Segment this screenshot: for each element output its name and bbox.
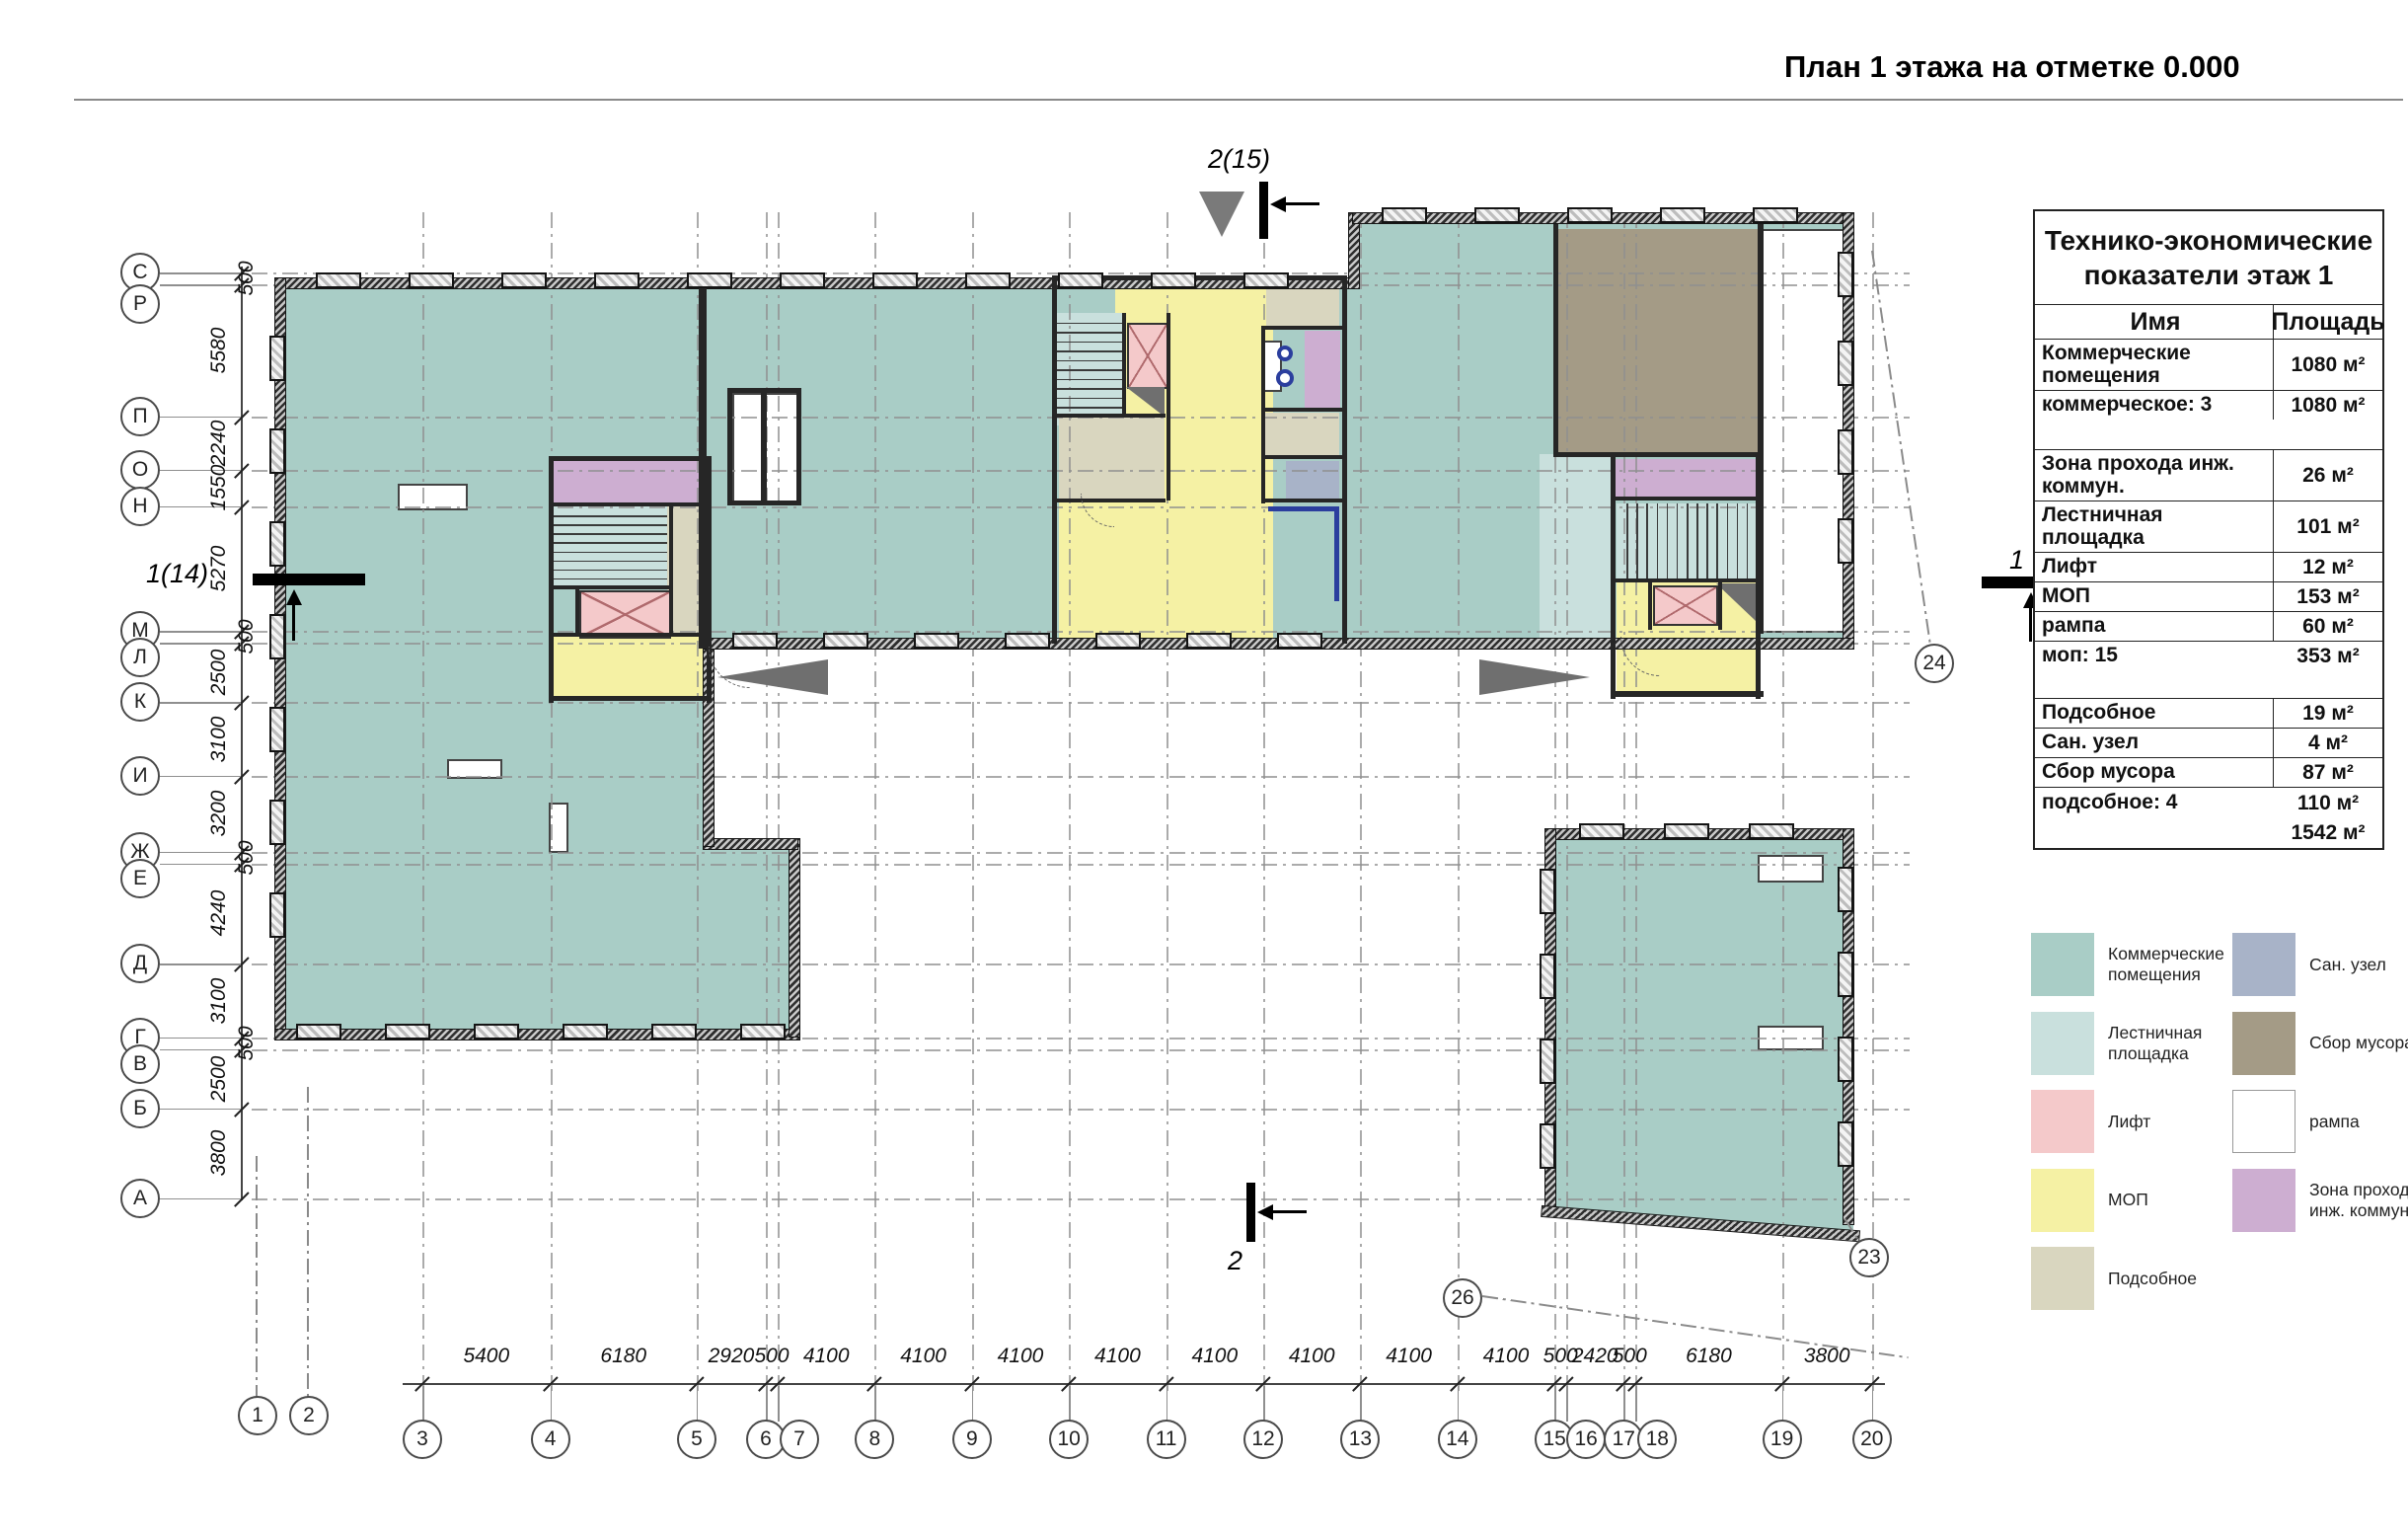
grid-line-h: [252, 470, 1910, 472]
window-mark: [594, 272, 640, 288]
tep-cell-name: Сан. узел: [2035, 730, 2273, 756]
axis-bubble-left: Н: [120, 487, 160, 526]
bubble-leader: [160, 702, 241, 704]
window-mark: [1838, 867, 1853, 912]
leader-line: [256, 1156, 258, 1403]
axis-bubble-left: А: [120, 1179, 160, 1218]
window-mark: [1186, 633, 1232, 649]
window-mark: [1838, 1121, 1853, 1167]
stair-lines: [1056, 388, 1122, 390]
axis-bubble-left: Б: [120, 1089, 160, 1128]
grid-line-v: [1872, 212, 1874, 1394]
wall-interior: [727, 388, 732, 503]
bubble-leader: [160, 1049, 241, 1051]
dim-label: 4100: [1289, 1345, 1335, 1368]
tep-cell-area: 153 м²: [2273, 582, 2382, 611]
stair-lines: [1667, 503, 1669, 580]
wall-interior: [1611, 452, 1616, 699]
axis-bubble-bottom: 8: [855, 1420, 894, 1459]
bubble-leader: [1635, 1386, 1637, 1422]
stair-lines: [1657, 503, 1659, 580]
section-arrow-line: [2029, 608, 2032, 642]
axis-bubble-bottom: 10: [1049, 1420, 1089, 1459]
window-mark: [385, 1024, 430, 1039]
wall-interior: [1553, 452, 1763, 457]
bubble-leader: [160, 272, 241, 274]
stair-lines: [554, 542, 667, 544]
stair-lines: [1706, 503, 1708, 580]
window-mark: [740, 1024, 786, 1039]
bubble-leader: [160, 631, 241, 633]
tep-row: Подсобное19 м²: [2035, 698, 2382, 728]
axis-bubble-bottom: 16: [1566, 1420, 1606, 1459]
axis-bubble-bottom: 12: [1243, 1420, 1283, 1459]
section-flag: [253, 574, 365, 585]
tep-cell-name: Лифт: [2035, 554, 2273, 580]
sink-icon: [1277, 346, 1293, 361]
window-mark: [965, 272, 1011, 288]
legend-item: Сбор мусора: [2232, 1012, 2408, 1075]
legend-label: Сан. узел: [2295, 955, 2408, 975]
tep-row: Лестничная площадка101 м²: [2035, 500, 2382, 552]
dim-label: 4100: [1094, 1345, 1141, 1368]
legend-label: Зона прохода инж. коммун.: [2295, 1180, 2408, 1221]
bubble-leader: [160, 1198, 241, 1200]
axis-bubble-left: Л: [120, 638, 160, 677]
grid-line-v: [1782, 212, 1784, 1394]
stair-lines: [1056, 398, 1122, 400]
tep-cell-area: 1542 м²: [2274, 818, 2382, 848]
dim-label: 2500: [207, 650, 231, 696]
dim-label: 2920: [709, 1345, 755, 1368]
grid-line-v: [422, 212, 424, 1394]
stair-lines: [1056, 407, 1122, 409]
stair-lines: [1056, 350, 1122, 352]
dim-label: 3100: [207, 977, 231, 1024]
tep-row: Лифт12 м²: [2035, 552, 2382, 581]
stair-lines: [1626, 503, 1628, 580]
axis-bubble-bottom: 14: [1438, 1420, 1477, 1459]
dim-label: 1550: [207, 465, 231, 511]
tep-row: коммерческое: 31080 м²: [2035, 390, 2382, 420]
tep-row: МОП153 м²: [2035, 581, 2382, 611]
wall-interior: [549, 502, 712, 506]
dim-label: 6180: [1686, 1345, 1732, 1368]
stair-lines: [1716, 503, 1718, 580]
legend-item: Сан. узел: [2232, 933, 2408, 996]
section-label-bottom: 2: [1228, 1246, 1242, 1276]
tep-cell-name: Коммерческие помещения: [2035, 341, 2273, 389]
tep-cell-area: 60 м²: [2273, 612, 2382, 641]
axis-bubble-bottom: 9: [952, 1420, 992, 1459]
stair-lines: [1056, 360, 1122, 362]
legend-swatch: [2031, 1012, 2094, 1075]
wall-interior: [575, 588, 579, 637]
window-mark: [1838, 518, 1853, 564]
section-flag: [1259, 182, 1268, 239]
legend-swatch: [2232, 1169, 2295, 1232]
axis-bubble-bottom: 19: [1763, 1420, 1802, 1459]
tep-table: Технико-экономические показатели этаж 1 …: [2033, 209, 2384, 850]
ramp-rail: [1268, 506, 1339, 511]
wall-interior: [1611, 578, 1761, 582]
axis-bubble-left: В: [120, 1044, 160, 1084]
axis-bubble-bottom: 7: [780, 1420, 819, 1459]
window-mark: [651, 1024, 697, 1039]
axis-bubble-bottom: 2: [289, 1396, 329, 1435]
section-arrow-line: [292, 605, 295, 641]
bubble-leader: [551, 1386, 553, 1422]
bubble-leader: [778, 1386, 780, 1422]
wall-interior: [761, 390, 767, 502]
window-mark: [1838, 341, 1853, 386]
tep-row: [2035, 670, 2382, 698]
window-mark: [687, 272, 732, 288]
wall-interior: [1611, 691, 1764, 697]
wall-interior: [796, 388, 801, 503]
grid-line-v: [551, 212, 553, 1394]
section-arrowhead: [1257, 1204, 1273, 1220]
window-mark: [1838, 429, 1853, 475]
wall-interior: [1261, 326, 1346, 330]
tep-row: 1542 м²: [2035, 818, 2382, 848]
legend-swatch: [2232, 1090, 2295, 1153]
legend-swatch: [2031, 1169, 2094, 1232]
wall-interior: [1261, 455, 1346, 459]
ramp-rail: [1334, 506, 1339, 601]
stair-lines: [554, 515, 667, 517]
legend-item: рампа: [2232, 1090, 2408, 1153]
tep-cell-area: [2274, 670, 2382, 698]
tep-row: Зона прохода инж. коммун.26 м²: [2035, 449, 2382, 500]
bubble-leader: [1554, 1386, 1556, 1422]
dim-label: 500: [235, 620, 259, 654]
legend-swatch: [2232, 1012, 2295, 1075]
stair-lines: [554, 570, 667, 572]
dim-label: 4240: [207, 890, 231, 937]
dim-label: 4100: [803, 1345, 850, 1368]
tep-cell-name: моп: 15: [2035, 643, 2274, 669]
elevator-lift: [1127, 323, 1168, 389]
tep-cell-name: рампа: [2035, 613, 2273, 640]
grid-line-h: [252, 702, 1910, 704]
axis-bubble-bottom: 5: [677, 1420, 716, 1459]
tep-cell-area: 87 м²: [2273, 758, 2382, 787]
wall-exterior: [704, 839, 797, 849]
tep-cell-name: [2035, 831, 2274, 835]
tep-row: [2035, 420, 2382, 449]
window-mark: [563, 1024, 608, 1039]
window-mark: [409, 272, 454, 288]
axis-bubble-left: П: [120, 397, 160, 436]
legend-item: Зона прохода инж. коммун.: [2232, 1169, 2408, 1232]
bubble-leader: [160, 643, 241, 645]
tep-cell-name: подсобное: 4: [2035, 790, 2274, 816]
elevator-lift: [579, 590, 671, 639]
dim-label: 500: [235, 1026, 259, 1060]
grid-line-v: [874, 212, 876, 1394]
dim-label: 500: [1613, 1345, 1647, 1368]
window-mark: [914, 633, 959, 649]
legend-swatch: [2031, 1247, 2094, 1310]
axis-bubble-left: И: [120, 756, 160, 796]
legend-item: Лифт: [2031, 1090, 2236, 1153]
stair-lines: [1636, 503, 1638, 580]
grid-line-v: [1360, 212, 1362, 1394]
tep-row: рампа60 м²: [2035, 611, 2382, 641]
bubble-leader: [160, 1109, 241, 1111]
legend-swatch: [2031, 933, 2094, 996]
axis-bubble-right: 24: [1915, 644, 1954, 683]
leader-line: [307, 1087, 309, 1403]
dim-label: 2500: [207, 1055, 231, 1102]
axis-bubble-bottom: 20: [1852, 1420, 1892, 1459]
dim-label: 5400: [463, 1345, 509, 1368]
wall-interior: [1122, 313, 1126, 418]
window-mark: [269, 892, 285, 938]
grid-line-h: [252, 1049, 1910, 1051]
section-triangle-top: [1199, 192, 1244, 237]
dim-label: 2240: [207, 420, 231, 466]
legend-label: рампа: [2295, 1112, 2408, 1132]
bubble-leader: [422, 1386, 424, 1422]
section-arrowhead: [286, 589, 302, 605]
tep-cell-area: 353 м²: [2274, 642, 2382, 670]
stair-lines: [1687, 503, 1689, 580]
bubble-leader: [160, 864, 241, 866]
axis-bubble-left: О: [120, 450, 160, 490]
wall-exterior: [790, 839, 799, 1037]
room-zone: [554, 461, 705, 502]
legend-label: Сбор мусора: [2295, 1033, 2408, 1053]
bubble-leader: [1566, 1386, 1568, 1422]
room-utility: [1266, 284, 1339, 328]
dim-label: 4100: [1483, 1345, 1530, 1368]
legend-swatch: [2232, 933, 2295, 996]
elevator-lift: [1653, 585, 1718, 626]
wall-exterior: [1349, 213, 1359, 288]
tep-cell-name: МОП: [2035, 583, 2273, 610]
tep-cell-name: Сбор мусора: [2035, 759, 2273, 786]
stair-lines: [1737, 503, 1739, 580]
tep-cell-area: 110 м²: [2274, 788, 2382, 818]
wall-interior: [1261, 408, 1346, 412]
bubble-leader: [160, 1038, 241, 1039]
window-mark: [780, 272, 825, 288]
grid-line-h: [252, 864, 1910, 866]
tep-cell-name: Имя: [2035, 307, 2273, 338]
stair-lines: [554, 561, 667, 563]
window-mark: [1838, 952, 1853, 997]
grid-line-v: [972, 212, 974, 1394]
tep-cell-area: [2274, 420, 2382, 449]
tep-cell-name: Подсобное: [2035, 700, 2273, 727]
window-mark: [316, 272, 361, 288]
axis-bubble-bottom: 4: [531, 1420, 570, 1459]
wall-interior: [549, 585, 672, 589]
grid-line-h: [252, 631, 1910, 633]
tep-cell-area: 1080 м²: [2273, 340, 2382, 390]
bubble-leader: [1782, 1386, 1784, 1422]
axis-bubble-bottom: 3: [403, 1420, 442, 1459]
section-label-right: 1: [2009, 545, 2024, 576]
stair-lines: [1727, 503, 1729, 580]
tep-row: моп: 15353 м²: [2035, 641, 2382, 670]
axis-bubble-bottom: 1: [238, 1396, 277, 1435]
section-arrow-line: [1286, 202, 1319, 205]
room-stair: [554, 506, 667, 587]
section-flag: [1246, 1183, 1255, 1242]
wall-interior: [1052, 414, 1166, 418]
tep-cell-area: 19 м²: [2273, 699, 2382, 728]
window-mark: [1151, 272, 1196, 288]
wall-interior: [1052, 275, 1057, 644]
window-mark: [1664, 823, 1709, 839]
window-mark: [474, 1024, 519, 1039]
bubble-leader: [1623, 1386, 1625, 1422]
bubble-leader: [1872, 1386, 1874, 1422]
stair-lines: [1056, 342, 1122, 344]
dim-label: 6180: [600, 1345, 646, 1368]
axis-bubble-left: Р: [120, 284, 160, 324]
bubble-leader: [160, 852, 241, 854]
drawing-sheet: План 1 этажа на отметке 0.000 5400618029…: [0, 0, 2408, 1540]
tep-table-title: Технико-экономические показатели этаж 1: [2035, 211, 2382, 305]
bubble-leader: [160, 776, 241, 778]
window-mark: [1540, 1123, 1555, 1169]
window-mark: [296, 1024, 341, 1039]
dim-label: 500: [235, 840, 259, 875]
wall-interior: [549, 456, 554, 703]
tep-row: подсобное: 4110 м²: [2035, 787, 2382, 818]
room-stair: [1540, 454, 1616, 639]
legend-label: Лестничная площадка: [2094, 1023, 2236, 1064]
tep-cell-area: 12 м²: [2273, 553, 2382, 581]
tep-cell-name: Лестничная площадка: [2035, 502, 2273, 551]
stair-lines: [1056, 379, 1122, 381]
room-mop: [554, 637, 705, 698]
section-arrowhead: [1270, 196, 1286, 212]
bubble-leader: [697, 1386, 699, 1422]
window-mark: [1540, 1039, 1555, 1084]
wall-interior: [549, 633, 712, 637]
axis-bubble-bottom: 18: [1637, 1420, 1677, 1459]
window-mark: [1838, 252, 1853, 297]
dim-line-bottom: [403, 1383, 1885, 1385]
bubble-leader: [160, 963, 241, 965]
room-ramp: [1762, 229, 1844, 633]
dim-label: 2420: [1572, 1345, 1618, 1368]
dim-label: 3800: [207, 1130, 231, 1177]
axis-bubble-left: К: [120, 682, 160, 722]
wall-interior: [1261, 499, 1346, 502]
legend-swatch: [2031, 1090, 2094, 1153]
dim-label: 5270: [207, 546, 231, 592]
tep-header-row: ИмяПлощадь: [2035, 305, 2382, 339]
stair-lines: [1056, 369, 1122, 371]
wall-interior: [1261, 326, 1265, 503]
legend-label: Коммерческие помещения: [2094, 944, 2236, 985]
room-utility: [1059, 418, 1165, 500]
wall-interior: [1758, 224, 1764, 634]
tep-cell-name: Зона прохода инж. коммун.: [2035, 451, 2273, 500]
window-mark: [1058, 272, 1103, 288]
axis-bubble-bottom: 11: [1147, 1420, 1186, 1459]
stair-lines: [1677, 503, 1679, 580]
stair-lines: [1056, 323, 1122, 325]
window-mark: [269, 707, 285, 752]
axis-bubble-right: 26: [1443, 1278, 1482, 1318]
window-mark: [1382, 207, 1427, 223]
dim-label: 3100: [207, 716, 231, 762]
grid-line-v: [1458, 212, 1460, 1394]
window-mark: [269, 614, 285, 659]
dim-label: 500: [754, 1345, 789, 1368]
grid-line-h: [252, 852, 1910, 854]
stair-lines: [1056, 332, 1122, 334]
legend-item: МОП: [2031, 1169, 2236, 1232]
section-label-top: 2(15): [1208, 144, 1270, 175]
tep-row: Сан. узел4 м²: [2035, 728, 2382, 757]
window-mark: [823, 633, 868, 649]
bubble-leader: [1069, 1386, 1071, 1422]
leader-line: [1871, 251, 1932, 652]
dim-label: 3800: [1804, 1345, 1850, 1368]
window-mark: [1660, 207, 1705, 223]
window-mark: [1005, 633, 1050, 649]
wall-interior: [1553, 224, 1558, 457]
window-mark: [1540, 954, 1555, 999]
tep-table-rows: ИмяПлощадьКоммерческие помещения1080 м²к…: [2035, 305, 2382, 848]
stair-lines: [1696, 503, 1698, 580]
tep-cell-name: [2035, 682, 2274, 686]
dim-label: 4100: [1191, 1345, 1238, 1368]
grid-line-h: [252, 1109, 1910, 1111]
entrance-arrow-left: [717, 659, 828, 695]
bubble-leader: [160, 284, 241, 286]
stair-lines: [1747, 503, 1749, 580]
tep-cell-area: 26 м²: [2273, 450, 2382, 500]
grid-line-h: [252, 1198, 1910, 1200]
bubble-leader: [1458, 1386, 1460, 1422]
legend-item: Подсобное: [2031, 1247, 2236, 1310]
window-mark: [1095, 633, 1141, 649]
tep-cell-area: Площадь: [2273, 305, 2382, 339]
window-mark: [1243, 272, 1289, 288]
window-mark: [269, 336, 285, 381]
wall-interior: [1166, 313, 1170, 500]
legend-label: Подсобное: [2094, 1269, 2236, 1289]
room-ramp: [1758, 855, 1824, 883]
section-label-left: 1(14): [146, 559, 208, 589]
tep-cell-area: 1080 м²: [2273, 391, 2382, 420]
stair-lines: [554, 578, 667, 580]
tep-cell-area: 4 м²: [2273, 729, 2382, 757]
bubble-leader: [1360, 1386, 1362, 1422]
dim-label: 4100: [900, 1345, 946, 1368]
stair-lines: [554, 552, 667, 554]
axis-bubble-left: Е: [120, 859, 160, 898]
wall-exterior: [275, 1030, 799, 1039]
window-mark: [1567, 207, 1613, 223]
grid-line-h: [252, 776, 1910, 778]
wall-interior: [1611, 497, 1761, 500]
sink-icon: [1276, 369, 1294, 387]
grid-line-h: [252, 963, 1910, 965]
wall-interior: [699, 278, 707, 649]
window-mark: [269, 800, 285, 845]
dim-label: 4100: [998, 1345, 1044, 1368]
